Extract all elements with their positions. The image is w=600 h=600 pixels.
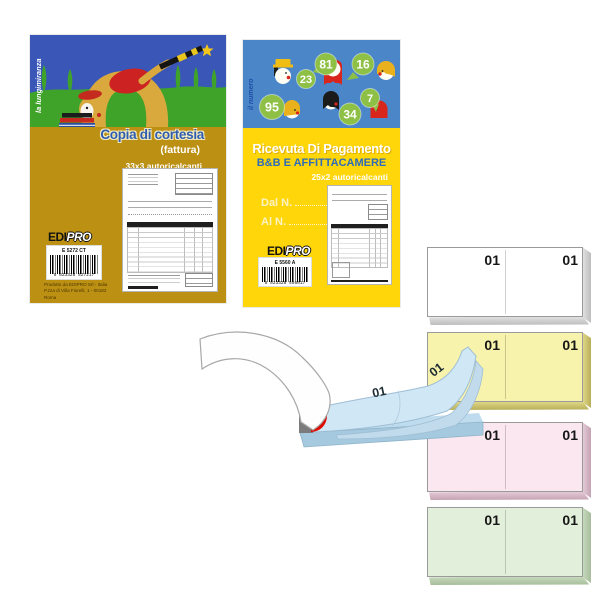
cover-illustration-faces: 23 81 16 95 34 7 il numero [243, 40, 400, 128]
booklet2-spec: 25x2 autoricalcanti [311, 172, 388, 182]
edipro-logo-edi: EDI [267, 244, 286, 258]
form-footer-lines [128, 275, 180, 284]
form-header-box [175, 173, 213, 195]
producer-line-2: P.zza di Villa Fiorelli, 1 - 00182 Roma [44, 288, 114, 301]
booklet-ricevuta-pagamento: 23 81 16 95 34 7 il numero Ricevuta Di P… [243, 40, 400, 307]
figure-eye [86, 107, 88, 109]
block-bottom-edge [429, 576, 589, 585]
ticket-number-right: 01 [544, 427, 578, 443]
face-yellow-hair [284, 100, 300, 119]
block-right-edge [582, 247, 591, 323]
bubble-number-95: 95 [265, 101, 279, 115]
field-al-n: Al N. [261, 216, 335, 228]
ticket-block-white: 01 01 [427, 247, 593, 327]
form-table-header [127, 222, 213, 227]
form-rule [128, 207, 212, 208]
perforation-line [505, 335, 506, 399]
cover-illustration-telescope: la lungimiranza [30, 35, 226, 127]
barcode: E 5272 CT 8 023328 527217 [46, 245, 102, 280]
booklet1-vertical-label: la lungimiranza [34, 58, 43, 113]
product-code: E 5560 A [259, 258, 311, 266]
form-dotted-rule [128, 214, 212, 215]
perforation-line [505, 510, 506, 574]
form-totals-box [185, 273, 213, 287]
form-header-box [368, 204, 388, 220]
perforation-line [505, 425, 506, 489]
booklet1-text-block: Copia di cortesia (fattura) 33x3 autoric… [30, 128, 204, 171]
book-stack [59, 113, 95, 127]
bubble-number-7: 7 [367, 93, 373, 105]
edipro-logo: EDIPRO [48, 231, 91, 243]
bubble-number-34: 34 [343, 107, 357, 121]
block-right-edge [582, 332, 591, 408]
block-right-edge [582, 422, 591, 498]
edipro-logo-pro: PRO [286, 244, 311, 258]
bubble-number-81: 81 [319, 57, 333, 71]
top-sheet-number-left: 01 [371, 384, 388, 401]
barcode-bars [262, 267, 308, 282]
red-dot [97, 113, 101, 117]
ticket-block-green: 01 01 [427, 507, 593, 587]
barcode-digits: 8 023328 556017 [259, 282, 311, 287]
perforation-line [505, 250, 506, 314]
form-table-header [331, 224, 388, 228]
edipro-logo: EDIPRO [267, 245, 310, 257]
form-stamp-box [332, 262, 350, 278]
invoice-form-preview [122, 168, 218, 292]
product-code: E 5272 CT [47, 246, 101, 254]
ticket-number-right: 01 [544, 512, 578, 528]
booklet1-title: Copia di cortesia [30, 128, 204, 142]
booklet2-vertical-label: il numero [248, 78, 255, 110]
ticket-number-left: 01 [466, 252, 500, 268]
edipro-logo-pro: PRO [67, 230, 92, 244]
edipro-logo-edi: EDI [48, 230, 67, 244]
booklet2-subtitle: B&B E AFFITTACAMERE [243, 157, 400, 169]
field-dal-label: Dal N. [261, 197, 292, 209]
barcode: E 5560 A 8 023328 556017 [258, 257, 312, 287]
ticket-number-right: 01 [544, 337, 578, 353]
barcode-digits: 8 023328 527217 [47, 274, 101, 279]
ticket-number-right: 01 [544, 252, 578, 268]
carbon-copy-pad-illustration: 2 01 01 [186, 323, 486, 455]
top-sheet-number-curl: 01 [427, 360, 447, 380]
form-footer-bar [128, 286, 158, 289]
receipt-form-preview [327, 185, 392, 285]
block-face: 01 01 [427, 507, 583, 577]
form-rule [332, 200, 387, 201]
form-footer-bar [331, 280, 388, 282]
booklet1-subtitle: (fattura) [30, 145, 204, 156]
bubble-number-23: 23 [300, 74, 312, 86]
ticket-number-left: 01 [466, 512, 500, 528]
field-al-label: Al N. [261, 216, 286, 228]
form-sender-lines [128, 174, 158, 185]
block-right-edge [582, 507, 591, 583]
lifted-white-sheet [200, 332, 330, 430]
product-collage: la lungimiranza Copia di cortesia (fattu… [0, 0, 600, 600]
block-face: 01 01 [427, 247, 583, 317]
block-bottom-edge [429, 491, 589, 500]
telescope-band-2 [192, 51, 197, 53]
producer-footer: Prodotto da EDIPRO Srl - Italia P.zza di… [44, 282, 114, 301]
telescope-band-1 [178, 56, 186, 60]
booklet2-title: Ricevuta Di Pagamento [243, 141, 400, 156]
barcode-bars [50, 255, 98, 274]
form-rule [128, 201, 212, 202]
bubble-number-16: 16 [356, 57, 370, 71]
booklet-copia-di-cortesia: la lungimiranza Copia di cortesia (fattu… [30, 35, 226, 303]
form-table [127, 227, 213, 273]
form-rule [332, 194, 387, 195]
